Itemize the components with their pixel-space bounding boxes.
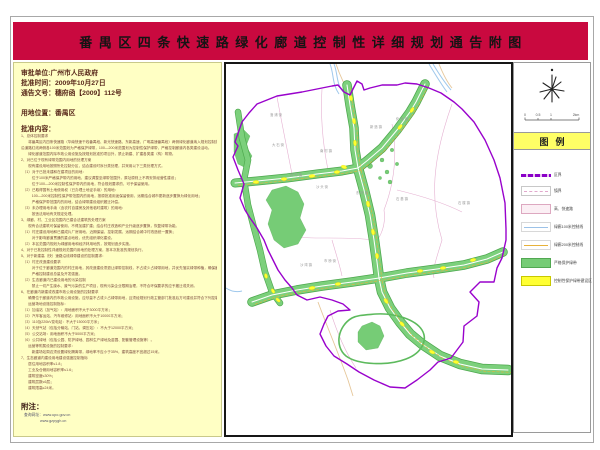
- town-label: 石 基 镇: [396, 196, 409, 201]
- content-line: 建筑限高≤24米。: [21, 385, 217, 391]
- town-label: 钟 村 镇: [290, 172, 303, 177]
- approved-content-text: 1、总体控制要求 将番禺区内四条快速路（华南快速干线番禺段、新光快速路、东新高速…: [21, 133, 217, 391]
- legend-item: 绿廊100米控制线: [521, 222, 587, 232]
- legend-title: 图例: [532, 135, 571, 148]
- title-banner: 番禺区四条快速路绿化廊道控制性详细规划通告附图: [13, 22, 588, 60]
- approved-content-header: 批准内容：: [21, 123, 55, 133]
- legend-item-label: 控制性保护绿带建设区: [554, 279, 592, 284]
- legend-item-label: 镇界: [554, 189, 562, 194]
- town-label: 大 石 街: [272, 142, 285, 147]
- line-100m-swatch: [521, 222, 551, 232]
- town-label: 市 桥 街: [324, 258, 337, 263]
- expressway-swatch: [521, 204, 551, 214]
- legend-panel: 00.512km 图例 区界镇界高、快速路绿廊100米控制线绿廊200米控制线严…: [513, 62, 591, 433]
- scale-tick: 1: [550, 113, 552, 117]
- page-title: 番禺区四条快速路绿化廊道控制性详细规划通告附图: [73, 32, 528, 51]
- scale-bar: 00.512km: [522, 111, 582, 125]
- scale-tick: 0.5: [536, 113, 541, 117]
- legend-item-label: 区界: [554, 173, 562, 178]
- query-url-1: 查询网址：www.upo.gov.cn: [24, 413, 70, 418]
- compass-box: 00.512km: [514, 63, 590, 133]
- legend-item: 绿廊200米控制线: [521, 240, 587, 250]
- control-green-swatch: [521, 276, 551, 286]
- town-label: 东 环 街: [356, 190, 369, 195]
- line-200m-swatch: [521, 240, 551, 250]
- legend-item-label: 绿廊100米控制线: [554, 225, 583, 230]
- planning-map: 洛 浦 街大 石 街南 村 镇新 造 镇化 龙 镇石 楼 镇石 基 镇东 环 街…: [226, 64, 511, 435]
- north-compass-icon: [530, 65, 574, 105]
- town-label: 沙 头 街: [316, 184, 329, 189]
- approval-time: 批准时间：2009年10月27日: [21, 77, 106, 87]
- scale-tick: 2km: [573, 113, 580, 117]
- town-label: 南 村 镇: [320, 148, 333, 153]
- legend-header: 图例: [514, 133, 590, 150]
- legend-item: 区界: [521, 173, 587, 178]
- query-url-2: www.gzpygh.cn: [40, 419, 66, 423]
- district-boundary-swatch: [521, 174, 551, 177]
- legend-item-label: 严格保护绿带: [554, 261, 577, 266]
- scale-tick: 0: [524, 113, 526, 117]
- strict-green-swatch: [521, 258, 551, 268]
- legend-list: 区界镇界高、快速路绿廊100米控制线绿廊200米控制线严格保护绿带控制性保护绿带…: [521, 173, 587, 294]
- legend-item-label: 绿廊200米控制线: [554, 243, 583, 248]
- approval-unit: 审批单位:广州市人民政府: [21, 67, 98, 77]
- legend-item: 镇界: [521, 186, 587, 196]
- legend-item: 高、快速路: [521, 204, 587, 214]
- land-location: 用地位置：番禺区: [21, 107, 75, 117]
- town-label: 沙 湾 镇: [300, 262, 313, 267]
- town-label: 石 楼 镇: [458, 200, 471, 205]
- town-label: 新 造 镇: [370, 124, 383, 129]
- note-header: 附注：: [21, 401, 44, 412]
- notice-number: 通告文号：穗府函【2009】112号: [21, 87, 122, 97]
- town-label: 化 龙 镇: [396, 116, 409, 121]
- approval-info-panel: 审批单位:广州市人民政府 批准时间：2009年10月27日 通告文号：穗府函【2…: [13, 62, 222, 437]
- legend-item-label: 高、快速路: [554, 207, 573, 212]
- town-boundary-swatch: [521, 186, 551, 196]
- town-label: 洛 浦 街: [270, 112, 283, 117]
- legend-item: 控制性保护绿带建设区: [521, 276, 587, 286]
- map-frame: 洛 浦 街大 石 街南 村 镇新 造 镇化 龙 镇石 楼 镇石 基 镇东 环 街…: [224, 62, 513, 437]
- legend-item: 严格保护绿带: [521, 258, 587, 268]
- planning-notice-sheet: { "title": "番禺区四条快速路绿化廊道控制性详细规划通告附图", "c…: [0, 0, 600, 450]
